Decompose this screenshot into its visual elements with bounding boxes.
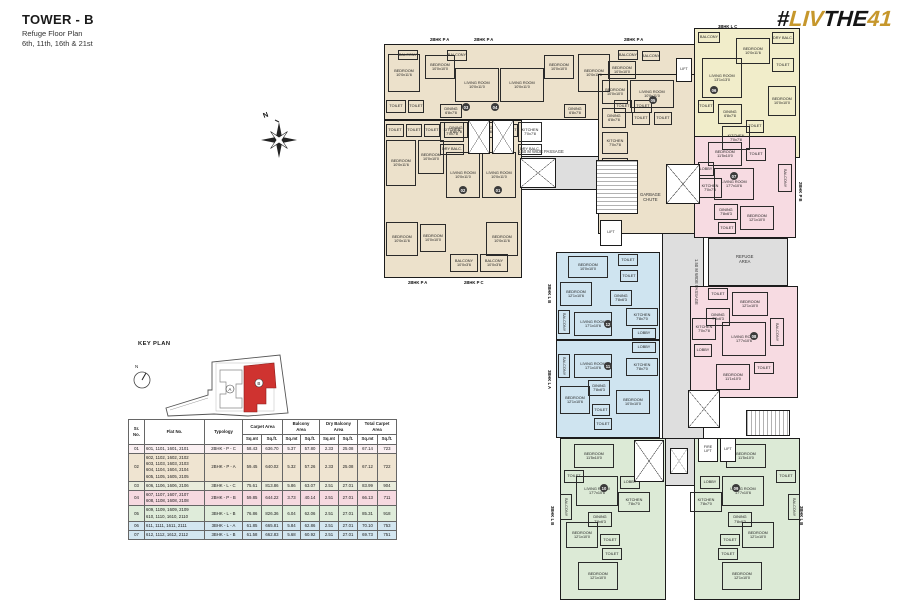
room-dining: DINING 6'8x7'8 <box>440 104 462 118</box>
room-bedroom: BEDROOM 10'0x10'0 <box>418 140 444 174</box>
typology-cell: 3BHK - L - C <box>205 481 243 490</box>
table-row: 07612, 1112, 1612, 21123BHK - L - B61.58… <box>129 531 397 540</box>
room-bedroom: BEDROOM 10'0x10'0 <box>568 256 608 278</box>
key-plan-title: KEY PLAN <box>138 341 170 347</box>
room-bedroom: BEDROOM 10'0x11'6 <box>386 140 416 186</box>
typology-cell: 2BHK - P - A <box>205 453 243 481</box>
floor-plan: BALCONYBEDROOM 10'0x11'6BEDROOM 10'0x10'… <box>378 24 808 608</box>
area-value-cell: 813.86 <box>262 481 283 490</box>
table-sub-header: Sq.ft. <box>262 435 283 444</box>
room-living-room: LIVING ROOM 10'0x11'0 <box>455 68 499 102</box>
plan-label: 1.50 M WIDE PASSAGE <box>694 259 699 305</box>
room-bedroom: BEDROOM 11'1x10'0 <box>716 364 750 390</box>
room-balcony: BALCONY 10'0x3'6 <box>480 254 508 272</box>
tower-a-label: A <box>228 387 231 392</box>
room-lobby: LOBBY <box>632 342 656 353</box>
area-value-cell: 2.33 <box>320 453 339 481</box>
room-toilet: TOILET <box>772 58 794 72</box>
plan-label: 2BHK P A <box>624 37 643 42</box>
room-bedroom: BEDROOM 10'0x10'0 <box>544 55 574 79</box>
typology-cell: 3BHK - L - B <box>205 506 243 521</box>
unit-badge: 06 <box>710 86 718 94</box>
room-balcony: BALCONY <box>558 310 570 334</box>
plan-label: 2BHK P B <box>798 182 803 201</box>
room-dining: DINING 7'8x6'3 <box>610 290 632 306</box>
area-value-cell: 58.43 <box>243 444 262 453</box>
room-toilet: TOILET <box>718 548 738 560</box>
area-value-cell: 62.06 <box>301 506 320 521</box>
area-value-cell: 27.01 <box>339 481 358 490</box>
plan-label: 3BHK L B <box>799 506 804 525</box>
room-kitchen: KITCHEN 7'8x7'0 <box>690 492 722 512</box>
staircase <box>596 160 638 214</box>
table-sub-header: Sq.ft. <box>301 435 320 444</box>
unit-badge: 03 <box>462 103 470 111</box>
room-toilet: TOILET <box>776 470 796 483</box>
area-value-cell: 5.68 <box>283 531 301 540</box>
lift-shaft <box>468 120 490 154</box>
table-group-header: Carpet Area <box>243 420 283 435</box>
area-value-cell: 2.51 <box>320 531 339 540</box>
room-balcony: BALCONY <box>642 51 660 61</box>
room-toilet: TOILET <box>754 362 774 374</box>
room-bedroom: BEDROOM 10'0x11'6 <box>486 222 518 256</box>
typology-cell: 3BHK - L - A <box>205 521 243 530</box>
flat-no-cell: 609, 1109, 1609, 2109 610, 1110, 1610, 2… <box>145 506 205 521</box>
lift-box: FIRE LIFT <box>698 438 718 462</box>
room-balcony: BALCONY 10'0x3'6 <box>450 254 478 272</box>
room-dining: DINING 7'8x6'3 <box>588 380 610 396</box>
area-value-cell: 66.13 <box>358 490 378 505</box>
room-toilet: TOILET <box>718 222 736 234</box>
room-toilet: TOILET <box>406 124 422 137</box>
room-kitchen: KITCHEN 7'0x7'8 <box>698 178 722 198</box>
tower-b-label: B <box>257 381 260 386</box>
room-balcony: BALCONY <box>698 32 720 43</box>
plan-floors: 6th, 11th, 16th & 21st <box>22 39 93 48</box>
room-dining: DINING 6'8x7'8 <box>564 104 586 118</box>
plan-label: REFUGE AREA <box>736 254 753 264</box>
area-value-cell: 2.51 <box>320 481 339 490</box>
sr-no-cell: 01 <box>129 444 145 453</box>
room-toilet: TOILET <box>632 112 650 125</box>
area-value-cell: 2.33 <box>320 444 339 453</box>
room-bedroom: BEDROOM 12'1x10'0 <box>732 292 768 316</box>
room-lobby: LOBBY <box>700 476 720 489</box>
sr-no-cell: 04 <box>129 490 145 505</box>
room-bedroom: BEDROOM 12'1x10'0 <box>578 562 618 590</box>
room-bedroom: BEDROOM 10'0x10'0 <box>608 61 636 79</box>
lift-shaft <box>666 164 700 204</box>
plan-label: 2BHK P A <box>474 37 493 42</box>
area-value-cell: 25.08 <box>339 453 358 481</box>
unit-badge: 07 <box>730 172 738 180</box>
unit-badge: 09 <box>732 484 740 492</box>
room-dry-balc-: DRY BALC. <box>772 32 794 44</box>
room-toilet: TOILET <box>620 270 638 282</box>
area-value-cell: 62.86 <box>301 521 320 530</box>
table-row: 02602, 1102, 1602, 2102 603, 1103, 1603,… <box>129 453 397 481</box>
room-toilet: TOILET <box>592 404 610 416</box>
room-toilet: TOILET <box>720 534 740 546</box>
floor-plan-sheet: TOWER - B Refuge Floor Plan 6th, 11th, 1… <box>0 0 900 609</box>
table-row: 06611, 1111, 1611, 21113BHK - L - A61.85… <box>129 521 397 530</box>
room-toilet: TOILET <box>698 100 714 113</box>
area-value-cell: 67.14 <box>358 444 378 453</box>
plan-label: 3BHK L B <box>550 506 555 525</box>
area-value-cell: 67.12 <box>358 453 378 481</box>
area-value-cell: 665.81 <box>262 521 283 530</box>
room-toilet: TOILET <box>424 124 440 137</box>
lift-shaft <box>492 120 514 154</box>
unit-badge: 10 <box>600 484 608 492</box>
area-value-cell: 2.51 <box>320 490 339 505</box>
room-dining: DINING 7'8x6'3 <box>714 204 738 220</box>
room-lobby: LOBBY <box>694 344 712 357</box>
table-row: 05609, 1109, 1609, 2109 610, 1110, 1610,… <box>129 506 397 521</box>
plan-subtitle: Refuge Floor Plan <box>22 29 82 38</box>
table-sub-header: Sq.mt <box>358 435 378 444</box>
table-col-header: Sr. No. <box>129 420 145 445</box>
area-value-cell: 27.01 <box>339 490 358 505</box>
room-toilet: TOILET <box>746 148 766 161</box>
room-lobby: LOBBY <box>632 328 656 339</box>
area-value-cell: 5.84 <box>283 521 301 530</box>
typology-cell: 2BHK - P - C <box>205 444 243 453</box>
table-sub-header: Sq.ft. <box>339 435 358 444</box>
room-bedroom: BEDROOM 12'1x10'0 <box>742 522 774 548</box>
area-value-cell: 85.31 <box>358 506 378 521</box>
table-sub-header: Sq.mt <box>243 435 262 444</box>
area-value-cell: 70.10 <box>358 521 378 530</box>
lift-shaft <box>634 440 664 482</box>
unit-badge: 08 <box>750 332 758 340</box>
room-kitchen: KITCHEN 7'0x7'8 <box>518 122 542 142</box>
table-col-header: Typology <box>205 420 243 445</box>
plan-label: 3BHK L B <box>547 284 552 303</box>
area-value-cell: 826.36 <box>262 506 283 521</box>
area-value-cell: 40.14 <box>301 490 320 505</box>
room-balcony: BALCONY <box>778 164 792 192</box>
plan-label: 2BHK P C <box>464 280 483 285</box>
room-balcony: BALCONY <box>447 50 467 61</box>
room-toilet: TOILET <box>408 100 424 113</box>
table-row: 03606, 1106, 1606, 21063BHK - L - C75.61… <box>129 481 397 490</box>
lift-box: LIFT <box>720 438 736 462</box>
typology-cell: 3BHK - L - B <box>205 531 243 540</box>
room-bedroom: BEDROOM 12'1x10'6 <box>560 386 590 414</box>
area-value-cell: 5.37 <box>283 444 301 453</box>
room-toilet: TOILET <box>386 124 404 137</box>
table-col-header: Flat No. <box>145 420 205 445</box>
room-kitchen: KITCHEN 7'8x7'0 <box>626 308 658 326</box>
room-living-room: LIVING ROOM 13'1x13'0 <box>702 58 742 98</box>
room-bedroom: BEDROOM 11'5x10'0 <box>574 444 614 468</box>
logo-the: THE <box>823 6 869 31</box>
room-bedroom: BEDROOM 12'1x10'6 <box>560 282 592 306</box>
unit-badge: 02 <box>459 186 467 194</box>
room-living-room: LIVING ROOM 17'7x10'6 <box>722 476 764 506</box>
room-dining: DINING 6'8x7'8 <box>444 122 468 138</box>
typology-cell: 2BHK - P - B <box>205 490 243 505</box>
table-group-header: Balcony Area <box>283 420 320 435</box>
table-group-header: Dry Balcony Area <box>320 420 358 435</box>
north-compass-icon: N <box>256 106 302 164</box>
page-title: TOWER - B <box>22 12 94 27</box>
sr-no-cell: 06 <box>129 521 145 530</box>
area-value-cell: 27.01 <box>339 531 358 540</box>
flat-no-cell: 607, 1107, 1607, 2107 608, 1108, 1608, 2… <box>145 490 205 505</box>
room-dining: DINING 6'8x7'8 <box>718 104 742 124</box>
room-lobby: LOBBY <box>698 162 714 176</box>
plan-label: 3BHK L A <box>547 370 552 389</box>
logo-41: 41 <box>867 6 893 31</box>
area-value-cell: 75.61 <box>243 481 262 490</box>
table-row: 01601, 1101, 1601, 21012BHK - P - C58.43… <box>129 444 397 453</box>
room-bedroom: BEDROOM 10'0x11'6 <box>388 54 420 92</box>
room-living-room: LIVING ROOM 10'0x11'0 <box>500 68 544 102</box>
area-value-cell: 83.99 <box>358 481 378 490</box>
area-value-cell: 57.80 <box>301 444 320 453</box>
lift-shaft <box>670 448 688 474</box>
room-kitchen: KITCHEN 7'8x7'0 <box>626 358 658 376</box>
room-bedroom: BEDROOM 10'0x10'0 <box>616 390 650 414</box>
area-value-cell: 2.51 <box>320 506 339 521</box>
unit-badge: 11 <box>604 362 612 370</box>
room-bedroom: BEDROOM 10'0x11'6 <box>386 222 418 256</box>
sr-no-cell: 03 <box>129 481 145 490</box>
room-toilet: TOILET <box>386 100 406 113</box>
room-balcony: BALCONY <box>560 494 572 520</box>
room-toilet: TOILET <box>654 112 672 125</box>
area-value-cell: 27.01 <box>339 521 358 530</box>
plan-label: 3BHK L C <box>718 24 737 29</box>
area-value-cell: 63.07 <box>301 481 320 490</box>
room-balcony: BALCONY <box>618 50 638 60</box>
area-value-cell: 57.26 <box>301 453 320 481</box>
table-sub-header: Sq.mt <box>320 435 339 444</box>
room-toilet: TOILET <box>600 534 620 546</box>
unit-badge: 05 <box>649 96 657 104</box>
area-value-cell: 59.85 <box>243 490 262 505</box>
area-value-cell: 76.86 <box>243 506 262 521</box>
room-toilet: TOILET <box>618 254 638 266</box>
area-value-cell: 69.73 <box>358 531 378 540</box>
flat-area-table: Sr. No.Flat No.TypologyCarpet AreaBalcon… <box>128 419 397 540</box>
table-sub-header: Sq.mt <box>283 435 301 444</box>
room-toilet: TOILET <box>708 288 728 300</box>
room-bedroom: BEDROOM 12'1x10'0 <box>722 562 762 590</box>
room-balcony: BALCONY <box>558 354 570 378</box>
plan-label: 2BHK P A <box>408 280 427 285</box>
room-balcony: BALCONY <box>770 318 784 346</box>
area-value-cell: 25.08 <box>339 444 358 453</box>
sr-no-cell: 02 <box>129 453 145 481</box>
sr-no-cell: 05 <box>129 506 145 521</box>
table-row: 04607, 1107, 1607, 2107 608, 1108, 1608,… <box>129 490 397 505</box>
unit-badge: 12 <box>604 320 612 328</box>
svg-text:N: N <box>262 112 269 120</box>
room-dining: DINING 6'8x7'8 <box>602 108 626 128</box>
area-value-cell: 2.51 <box>320 521 339 530</box>
area-value-cell: 644.22 <box>262 490 283 505</box>
room-toilet: TOILET <box>594 418 612 430</box>
lift-shaft <box>688 390 720 428</box>
staircase <box>746 410 790 436</box>
room-bedroom: BEDROOM 10'0x10'0 <box>420 224 446 252</box>
area-value-cell: 640.02 <box>262 453 283 481</box>
area-value-cell: 60.92 <box>301 531 320 540</box>
area-value-cell: 61.85 <box>243 521 262 530</box>
key-plan-map: N A B <box>130 350 305 418</box>
key-plan-compass-icon: N <box>134 364 150 388</box>
flat-no-cell: 606, 1106, 1606, 2106 <box>145 481 205 490</box>
flat-no-cell: 602, 1102, 1602, 2102 603, 1103, 1603, 2… <box>145 453 205 481</box>
area-value-cell: 3.73 <box>283 490 301 505</box>
flat-no-cell: 611, 1111, 1611, 2111 <box>145 521 205 530</box>
area-value-cell: 6.04 <box>283 506 301 521</box>
area-value-cell: 27.01 <box>339 506 358 521</box>
room-kitchen: KITCHEN 7'0x7'8 <box>602 132 628 154</box>
svg-text:N: N <box>135 364 138 369</box>
room-toilet: TOILET <box>602 548 622 560</box>
sr-no-cell: 07 <box>129 531 145 540</box>
lift-box: LIFT <box>600 220 622 246</box>
plan-label: GARBAGE CHUTE <box>640 192 661 202</box>
area-value-cell: 5.32 <box>283 453 301 481</box>
area-value-cell: 5.86 <box>283 481 301 490</box>
area-value-cell: 61.58 <box>243 531 262 540</box>
area-value-cell: 59.45 <box>243 453 262 481</box>
unit-badge: 04 <box>491 103 499 111</box>
area-value-cell: 662.83 <box>262 531 283 540</box>
room-living-room: LIVING ROOM 17'7x10'6 <box>576 476 618 506</box>
lift-box: LIFT <box>676 58 692 82</box>
area-value-cell: 636.70 <box>262 444 283 453</box>
room-bedroom: BEDROOM 12'1x10'0 <box>566 522 598 548</box>
room-bedroom: BEDROOM 10'0x10'0 <box>602 80 628 104</box>
room-kitchen: KITCHEN 7'8x7'0 <box>618 492 650 512</box>
unit-badge: 01 <box>494 186 502 194</box>
room-bedroom: BEDROOM 12'1x10'0 <box>740 206 774 230</box>
lift-shaft <box>520 158 556 188</box>
plan-label: 2BHK P A <box>430 37 449 42</box>
room-living-room: LIVING ROOM 17'7x10'6 <box>722 322 766 356</box>
room-bedroom: BEDROOM 10'0x10'0 <box>768 86 796 116</box>
plan-label: 1.50 M WIDE PASSAGE <box>518 149 564 154</box>
room-kitchen: KITCHEN 7'0x7'8 <box>692 318 716 340</box>
flat-no-cell: 612, 1112, 1612, 2112 <box>145 531 205 540</box>
flat-no-cell: 601, 1101, 1601, 2101 <box>145 444 205 453</box>
